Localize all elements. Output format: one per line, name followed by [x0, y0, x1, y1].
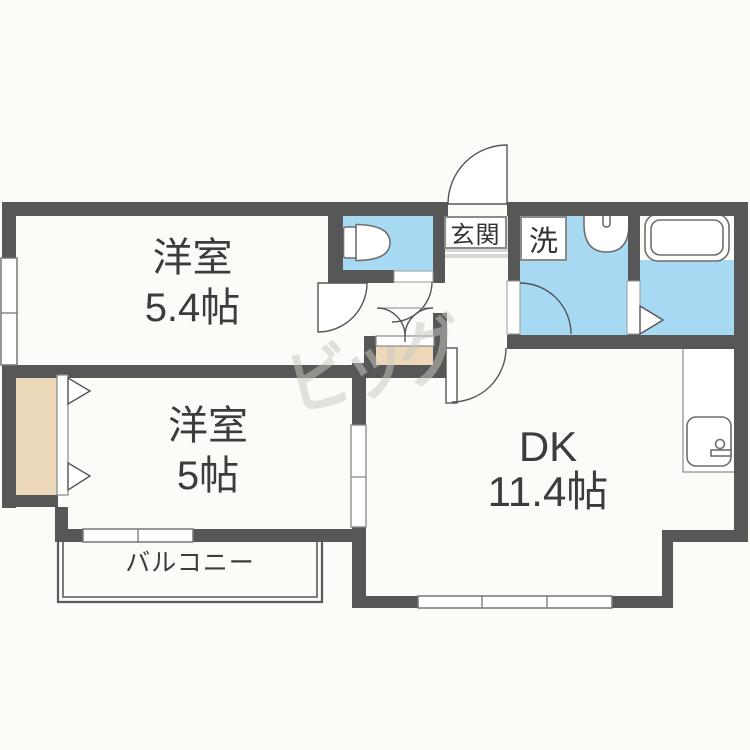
wall-toilet-bottom	[328, 270, 394, 283]
room2-size: 5帖	[75, 451, 341, 501]
laundry-label: 洗	[520, 216, 567, 261]
room1-door-swing	[318, 283, 367, 332]
room2-dk-opening	[351, 425, 366, 527]
room1-label: 洋室 5.4帖	[60, 233, 325, 333]
wall-closet-bottom	[10, 495, 58, 507]
wall-hall-stub	[433, 313, 447, 378]
room2-label: 洋室 5帖	[75, 401, 341, 501]
room2-bottom-window	[83, 529, 193, 542]
bathtub-icon	[645, 214, 729, 261]
dk-bottom-window	[418, 596, 612, 608]
wall-wet-bottom	[507, 335, 748, 349]
dk-name: DK	[418, 424, 678, 469]
wall-outer-right	[734, 202, 748, 542]
floorplan: ビッグ 洋室 5.4帖 洋室 5帖 DK 11.4帖 バルコニー 玄関 洗	[0, 0, 750, 750]
toilet-door-opening	[394, 271, 433, 282]
dk-size: 11.4帖	[418, 469, 678, 514]
bath-door-opening	[627, 281, 640, 334]
hall-closet-double-doors	[376, 308, 434, 346]
kitchen-sink-icon	[683, 348, 735, 472]
toilet-door-swing	[392, 282, 432, 322]
room1-left-window	[1, 258, 17, 365]
room2-name: 洋室	[75, 401, 341, 451]
washbasin-icon	[584, 210, 629, 252]
floorplan-drawing	[0, 0, 750, 750]
wall-notch-horizontal	[662, 530, 748, 542]
wall-room1-bottom	[2, 365, 447, 378]
hall-storage-floor	[376, 345, 434, 366]
wall-step-left	[55, 507, 68, 542]
toilet-icon	[344, 225, 391, 261]
dk-door	[446, 348, 506, 403]
washroom-door-opening	[507, 281, 520, 334]
room2-closet-floor	[14, 375, 57, 496]
entrance-label: 玄関	[444, 216, 507, 249]
dk-label: DK 11.4帖	[418, 424, 678, 514]
balcony-label: バルコニー	[90, 551, 290, 576]
room1-name: 洋室	[60, 233, 325, 283]
entrance-door-swing	[448, 145, 507, 204]
room1-size: 5.4帖	[60, 283, 325, 333]
